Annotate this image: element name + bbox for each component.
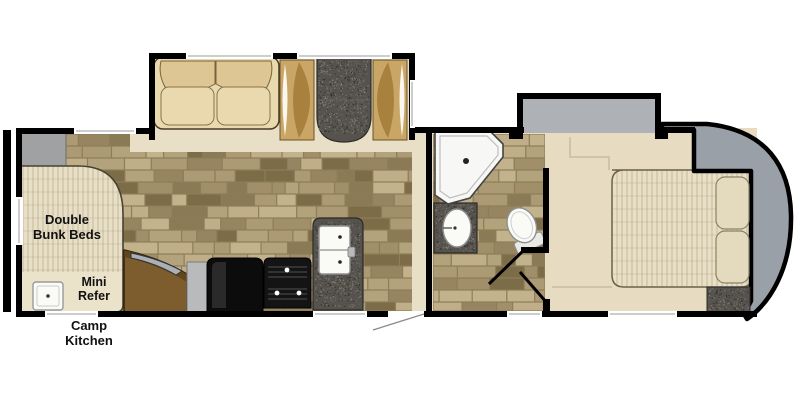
walkway-carpet bbox=[130, 134, 412, 152]
mini-refer-label: Mini Refer bbox=[70, 275, 118, 303]
range-stove bbox=[264, 258, 311, 308]
faucet bbox=[348, 247, 355, 257]
booth-dinette bbox=[280, 58, 407, 142]
rear-cap-wall bbox=[3, 130, 11, 312]
sofa-seat-cushion bbox=[217, 87, 270, 125]
counter-strip bbox=[187, 262, 207, 312]
sofa-seat-cushion bbox=[161, 87, 214, 125]
bathroom-vanity bbox=[434, 203, 477, 253]
burner bbox=[275, 291, 280, 296]
double-bunk-beds-label: Double Bunk Beds bbox=[30, 213, 104, 242]
shower-drain bbox=[463, 158, 469, 164]
burner bbox=[285, 268, 290, 273]
camp-kitchen-sink bbox=[33, 282, 63, 310]
camp-kitchen-label: Camp Kitchen bbox=[46, 319, 132, 348]
pillow bbox=[716, 231, 749, 283]
rv-floorplan: Double Bunk Beds Mini Refer Camp Kitchen bbox=[0, 0, 800, 400]
bedroom-slideout-box bbox=[523, 99, 655, 133]
kitchen-counter bbox=[313, 218, 363, 310]
double-kitchen-sink bbox=[319, 226, 355, 274]
pillow bbox=[716, 177, 749, 229]
bunk-wardrobe-cabinet bbox=[20, 133, 66, 167]
sofa bbox=[154, 57, 279, 129]
refrigerator bbox=[207, 258, 263, 312]
burner bbox=[297, 291, 302, 296]
